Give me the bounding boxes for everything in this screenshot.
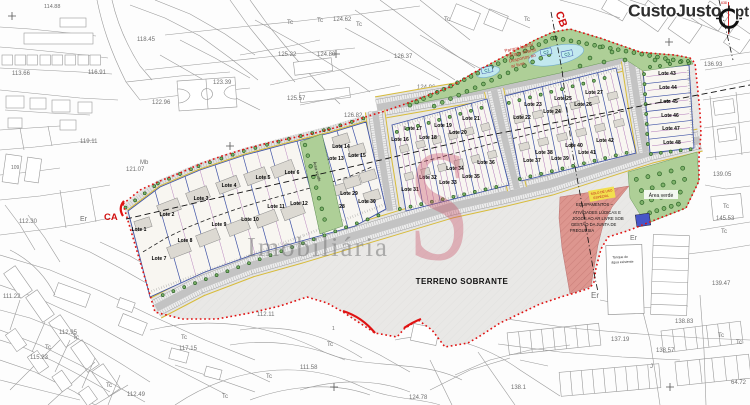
svg-text:Lote 10: Lote 10 (241, 217, 259, 223)
svg-text:Tc: Tc (718, 333, 724, 339)
svg-text:Lote 1: Lote 1 (132, 227, 147, 233)
svg-text:Lote 6: Lote 6 (285, 170, 300, 176)
svg-text:Lote 15: Lote 15 (348, 153, 366, 159)
svg-text:124.80: 124.80 (317, 52, 336, 58)
svg-text:122.96: 122.96 (152, 100, 171, 106)
svg-text:Er: Er (591, 291, 599, 300)
svg-text:Tc: Tc (222, 394, 228, 400)
svg-text:Lote 16: Lote 16 (391, 137, 409, 143)
svg-text:64.72: 64.72 (731, 380, 747, 386)
svg-text:Lote 5: Lote 5 (256, 175, 271, 181)
svg-text:115.23: 115.23 (30, 355, 49, 361)
svg-text:CustoJusto: CustoJusto (628, 1, 721, 21)
svg-text:126.37: 126.37 (394, 54, 413, 60)
svg-text:pt: pt (735, 4, 749, 21)
svg-text:117.15: 117.15 (179, 346, 198, 352)
svg-text:137.19: 137.19 (611, 337, 630, 343)
svg-text:Lote 3: Lote 3 (194, 196, 209, 202)
svg-text:Lote 30: Lote 30 (358, 199, 376, 205)
svg-text:Tc: Tc (266, 374, 272, 380)
svg-text:Lote 12: Lote 12 (290, 201, 308, 207)
svg-text:S: S (408, 116, 470, 293)
svg-text:124.62: 124.62 (333, 17, 352, 23)
svg-text:Lote 26: Lote 26 (574, 102, 592, 108)
svg-text:139.47: 139.47 (712, 281, 731, 287)
svg-text:Tc: Tc (327, 342, 333, 348)
svg-text:Tc: Tc (444, 17, 450, 23)
svg-text:Tc: Tc (723, 204, 729, 210)
svg-text:Tc: Tc (524, 17, 530, 23)
svg-text:Lote 46: Lote 46 (661, 113, 679, 119)
svg-text:FREGUESIA: FREGUESIA (570, 228, 594, 233)
svg-text:112.49: 112.49 (127, 392, 146, 398)
svg-text:119.11: 119.11 (80, 139, 98, 145)
svg-text:Lote 48: Lote 48 (663, 140, 681, 146)
svg-text:136.93: 136.93 (704, 62, 723, 68)
svg-text:111.22: 111.22 (3, 294, 21, 300)
svg-text:JOGOS AO AR LIVRE SOB: JOGOS AO AR LIVRE SOB (572, 216, 624, 221)
svg-text:ATIVIDADES LÚDICAS E: ATIVIDADES LÚDICAS E (573, 210, 621, 215)
svg-text:125.22: 125.22 (278, 52, 297, 58)
svg-text:Lote 14: Lote 14 (332, 144, 350, 150)
svg-text:638: 638 (721, 1, 727, 5)
svg-text:Lote 41: Lote 41 (578, 150, 596, 156)
svg-text:Lote 4: Lote 4 (222, 183, 237, 189)
svg-text:Lote 45: Lote 45 (660, 99, 678, 105)
svg-text:Lote 47: Lote 47 (662, 126, 680, 132)
svg-text:Área verde: Área verde (649, 192, 674, 199)
svg-text:GESTÃO DA JUNTA DE: GESTÃO DA JUNTA DE (571, 222, 617, 227)
svg-text:Lote 2: Lote 2 (160, 212, 175, 218)
svg-text:Lote 36: Lote 36 (477, 160, 495, 166)
svg-text:Tc: Tc (721, 229, 727, 235)
svg-text:121.07: 121.07 (126, 167, 145, 173)
svg-text:Tc: Tc (181, 335, 187, 341)
svg-text:Lote 39: Lote 39 (551, 156, 569, 162)
svg-text:água existente: água existente (611, 260, 633, 265)
svg-text:112.30: 112.30 (19, 219, 38, 225)
svg-text:138.83: 138.83 (675, 319, 694, 325)
svg-text:111.58: 111.58 (300, 365, 318, 371)
svg-text:123.39: 123.39 (213, 80, 232, 86)
svg-text:124.78: 124.78 (409, 395, 428, 401)
svg-text:Mb: Mb (140, 160, 149, 166)
svg-text:109: 109 (11, 165, 20, 171)
svg-text:Tc: Tc (106, 383, 112, 389)
svg-text:Lote 40: Lote 40 (565, 143, 583, 149)
svg-text:Lote 42: Lote 42 (596, 138, 614, 144)
svg-text:118.45: 118.45 (137, 37, 156, 43)
svg-text:Tc: Tc (356, 22, 362, 28)
svg-text:J: J (650, 364, 653, 370)
svg-text:1: 1 (332, 326, 335, 332)
svg-text:Lote 9: Lote 9 (212, 222, 227, 228)
svg-text:113.66: 113.66 (12, 71, 31, 77)
svg-text:Lote 29: Lote 29 (340, 191, 358, 197)
svg-text:Tc: Tc (317, 18, 323, 24)
svg-text:Tanque de: Tanque de (612, 255, 628, 260)
svg-text:Lote 13: Lote 13 (326, 156, 344, 162)
svg-text:Lote 27: Lote 27 (585, 90, 603, 96)
svg-text:Tc: Tc (45, 345, 51, 351)
svg-text:Lote 7: Lote 7 (152, 256, 167, 262)
svg-text:Imobiliária: Imobiliária (247, 232, 389, 262)
svg-text:Er: Er (630, 235, 638, 242)
svg-text:112.11: 112.11 (257, 312, 275, 318)
svg-text:CA: CA (104, 212, 118, 223)
svg-text:Lote 44: Lote 44 (659, 85, 677, 91)
svg-text:114.88: 114.88 (44, 4, 60, 10)
svg-text:Lote 24: Lote 24 (543, 109, 561, 115)
svg-text:139.05: 139.05 (713, 172, 732, 178)
svg-text:Lote 22: Lote 22 (513, 115, 531, 121)
svg-text:Er: Er (80, 216, 88, 223)
svg-text:Lote 37: Lote 37 (523, 158, 541, 164)
svg-text:Tc: Tc (736, 340, 742, 346)
svg-text:Tc: Tc (73, 335, 79, 341)
svg-text:Lote 11: Lote 11 (267, 204, 284, 210)
svg-text:Lote 43: Lote 43 (658, 71, 676, 77)
svg-text:Lote 25: Lote 25 (554, 96, 572, 102)
svg-text:Lote 23: Lote 23 (524, 102, 542, 108)
svg-text:Lote 8: Lote 8 (178, 238, 193, 244)
svg-text:138.1: 138.1 (511, 385, 527, 391)
svg-text:145.53: 145.53 (716, 216, 735, 222)
svg-text:116.91: 116.91 (88, 70, 107, 76)
svg-text:138.57: 138.57 (656, 348, 675, 354)
svg-text:Tc: Tc (287, 20, 293, 26)
svg-text:125.57: 125.57 (287, 96, 306, 102)
